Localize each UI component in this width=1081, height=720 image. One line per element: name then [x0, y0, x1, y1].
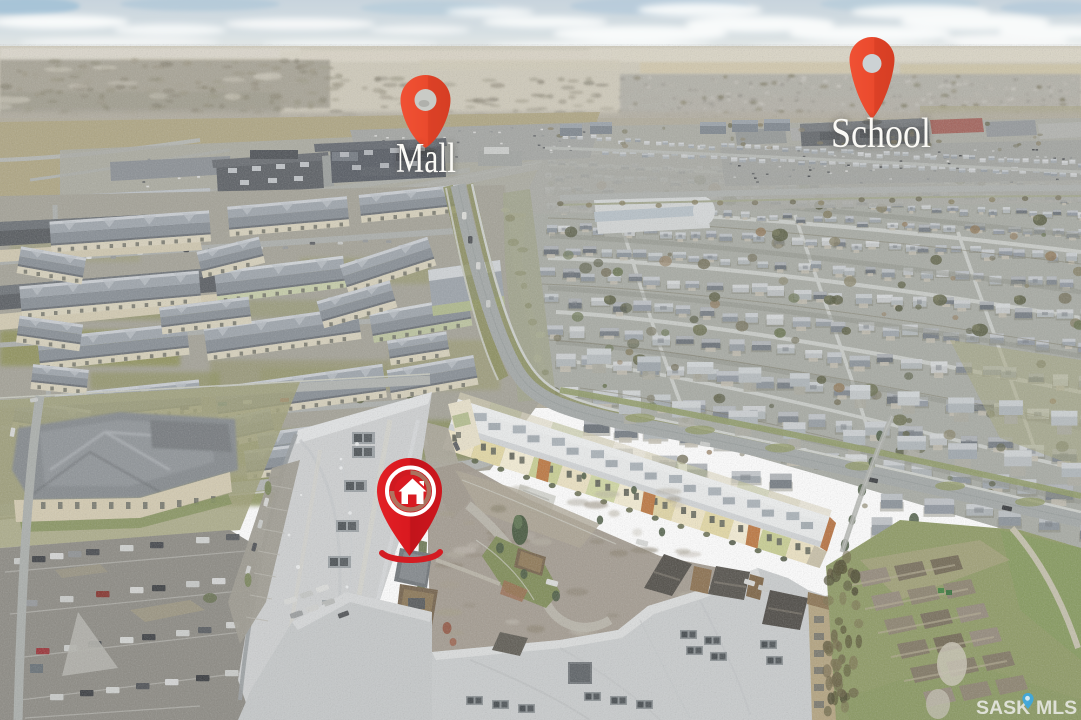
svg-text:MLS: MLS — [1036, 697, 1077, 719]
svg-text:SASK: SASK — [976, 697, 1030, 719]
svg-text:School: School — [831, 111, 931, 157]
svg-text:Mall: Mall — [396, 136, 456, 182]
